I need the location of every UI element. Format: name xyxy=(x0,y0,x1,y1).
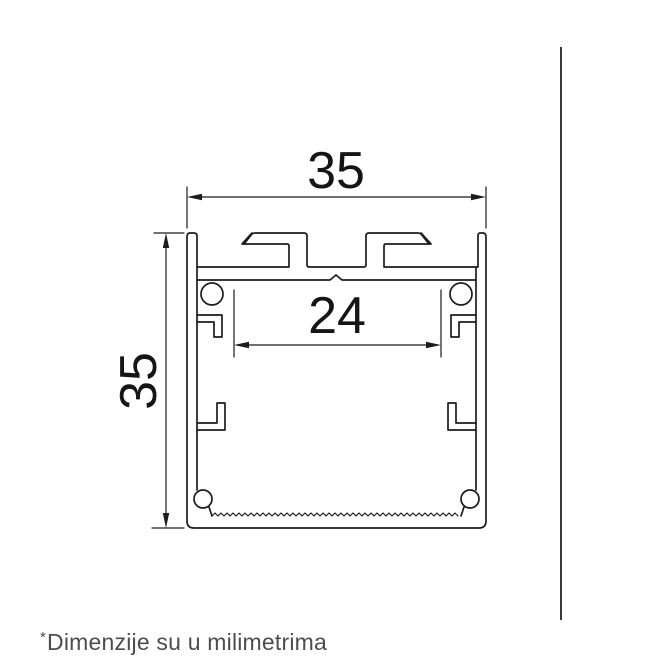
profile-outer-contour xyxy=(187,233,486,528)
left-dim-arrow-top xyxy=(163,233,169,248)
inner-dim-arrow-left xyxy=(234,342,249,348)
vertical-separator-line xyxy=(560,47,562,620)
left-dimension-label: 35 xyxy=(110,352,168,410)
footnote-text: Dimenzije su u milimetrima xyxy=(47,629,327,655)
t-slot-left-cap-underside xyxy=(242,233,252,244)
upper-hook-right xyxy=(451,315,476,337)
footnote-asterisk: * xyxy=(40,629,46,646)
upper-hook-left xyxy=(197,315,222,337)
floor-step-right xyxy=(461,507,464,516)
mid-hook-left xyxy=(197,403,225,430)
serration-path xyxy=(212,513,458,516)
inner-dim-arrow-right xyxy=(426,342,441,348)
top-dim-arrow-left xyxy=(187,194,202,200)
left-dim-arrow-bottom xyxy=(163,513,169,528)
bottom-boss-right xyxy=(461,490,479,508)
bottom-boss-left xyxy=(194,490,212,508)
cavity-ceiling xyxy=(197,275,476,280)
dimensions xyxy=(152,187,486,528)
floor-step-left xyxy=(209,507,212,516)
screw-boss-right xyxy=(450,283,472,305)
profile-technical-drawing: 35 35 24 xyxy=(0,0,668,668)
mid-hook-right xyxy=(448,403,476,430)
top-dim-arrow-right xyxy=(471,194,486,200)
screw-boss-left xyxy=(201,283,223,305)
t-slot-right-cap-underside xyxy=(421,233,431,244)
footnote: *Dimenzije su u milimetrima xyxy=(40,629,327,656)
inner-dimension-label: 24 xyxy=(308,287,366,345)
top-dimension-label: 35 xyxy=(307,142,365,200)
page: 35 35 24 *Dimenzije su u milimetrima xyxy=(0,0,668,668)
profile-cross-section xyxy=(187,233,486,528)
